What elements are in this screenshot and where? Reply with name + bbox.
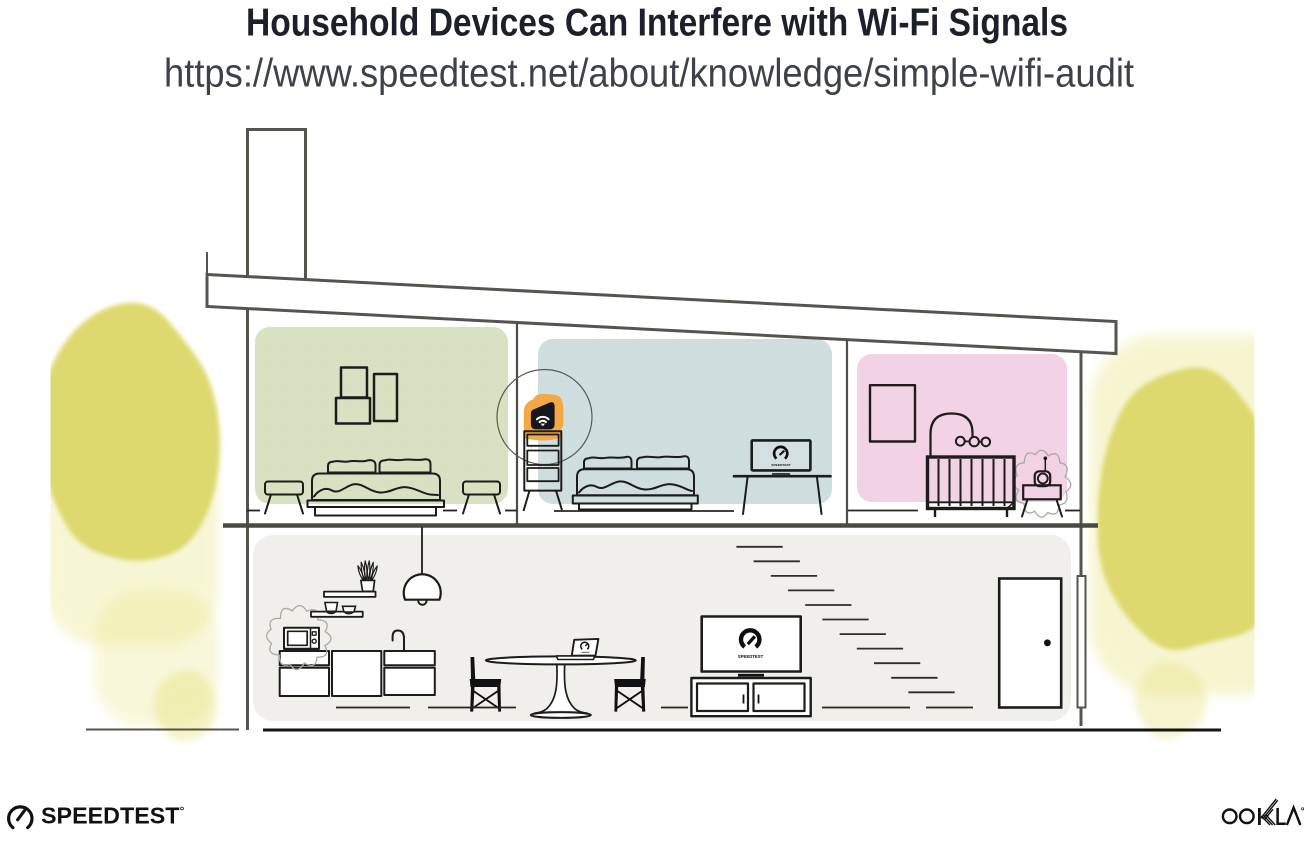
svg-text:SPEEDTEST: SPEEDTEST: [738, 654, 764, 659]
svg-text:https://www.speedtest.net/abou: https://www.speedtest.net/about/knowledg…: [164, 52, 1134, 96]
svg-text:SPEEDTEST: SPEEDTEST: [771, 463, 791, 467]
svg-text:Household Devices Can Interfer: Household Devices Can Interfere with Wi-…: [246, 2, 1068, 45]
svg-text:SPEEDTEST: SPEEDTEST: [41, 802, 180, 828]
